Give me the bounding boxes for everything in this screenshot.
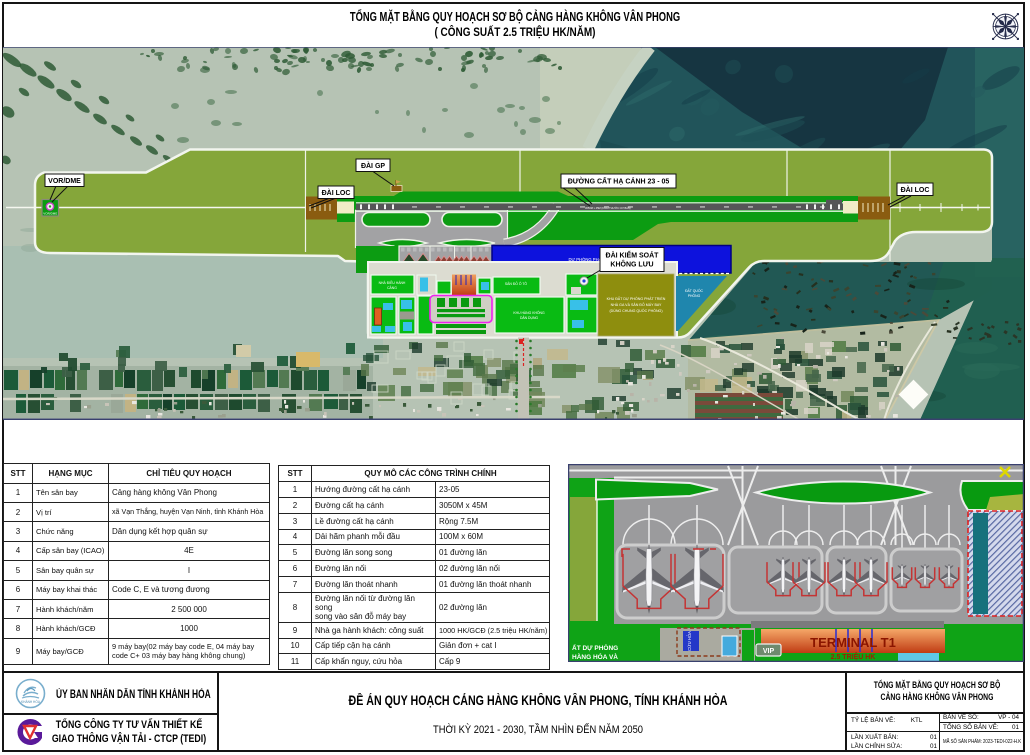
svg-text:VOR/DME: VOR/DME [48,178,81,185]
svg-text:CẢNG: CẢNG [387,285,397,290]
svg-text:VOR/DME: VOR/DME [43,212,57,216]
svg-text:SÂN ĐỖ Ô TÔ: SÂN ĐỖ Ô TÔ [505,281,528,286]
svg-text:DÂN DỤNG: DÂN DỤNG [520,316,538,320]
svg-text:CỨU HỎA: CỨU HỎA [687,631,692,651]
svg-text:ĐÀI LOC: ĐÀI LOC [901,185,930,194]
svg-text:KHÔNG LƯU: KHÔNG LƯU [610,260,653,269]
svg-text:ĐÀI KIỂM SOÁT: ĐÀI KIỂM SOÁT [606,251,660,260]
svg-text:ĐẤT QUỐC: ĐẤT QUỐC [685,288,703,293]
svg-text:VIP: VIP [763,648,775,655]
svg-text:KHU ĐẤT DỰ PHÒNG PHÁT TRIỂN: KHU ĐẤT DỰ PHÒNG PHÁT TRIỂN [607,296,666,301]
svg-text:KHU HÀNG KHÔNG: KHU HÀNG KHÔNG [513,310,545,315]
svg-text:PHÒNG: PHÒNG [688,293,701,298]
svg-text:HÀNG HÓA VÀ: HÀNG HÓA VÀ [572,652,618,661]
svg-text:ĐÀI GP: ĐÀI GP [361,161,385,170]
svg-text:TERMINAL T1: TERMINAL T1 [810,635,896,650]
svg-text:NHÀ ĐIỀU HÀNH: NHÀ ĐIỀU HÀNH [379,280,406,285]
svg-text:NHÀ GA VÀ SÂN ĐỖ MÁY BAY: NHÀ GA VÀ SÂN ĐỖ MÁY BAY [611,302,662,307]
svg-text:ĐÀI LOC: ĐÀI LOC [322,188,351,197]
svg-text:KHÁNH HÒA: KHÁNH HÒA [21,699,41,704]
svg-text:2.5 TRIỆU HK: 2.5 TRIỆU HK [831,652,876,661]
svg-text:(DÙNG CHUNG QUỐC PHÒNG): (DÙNG CHUNG QUỐC PHÒNG) [609,308,662,313]
